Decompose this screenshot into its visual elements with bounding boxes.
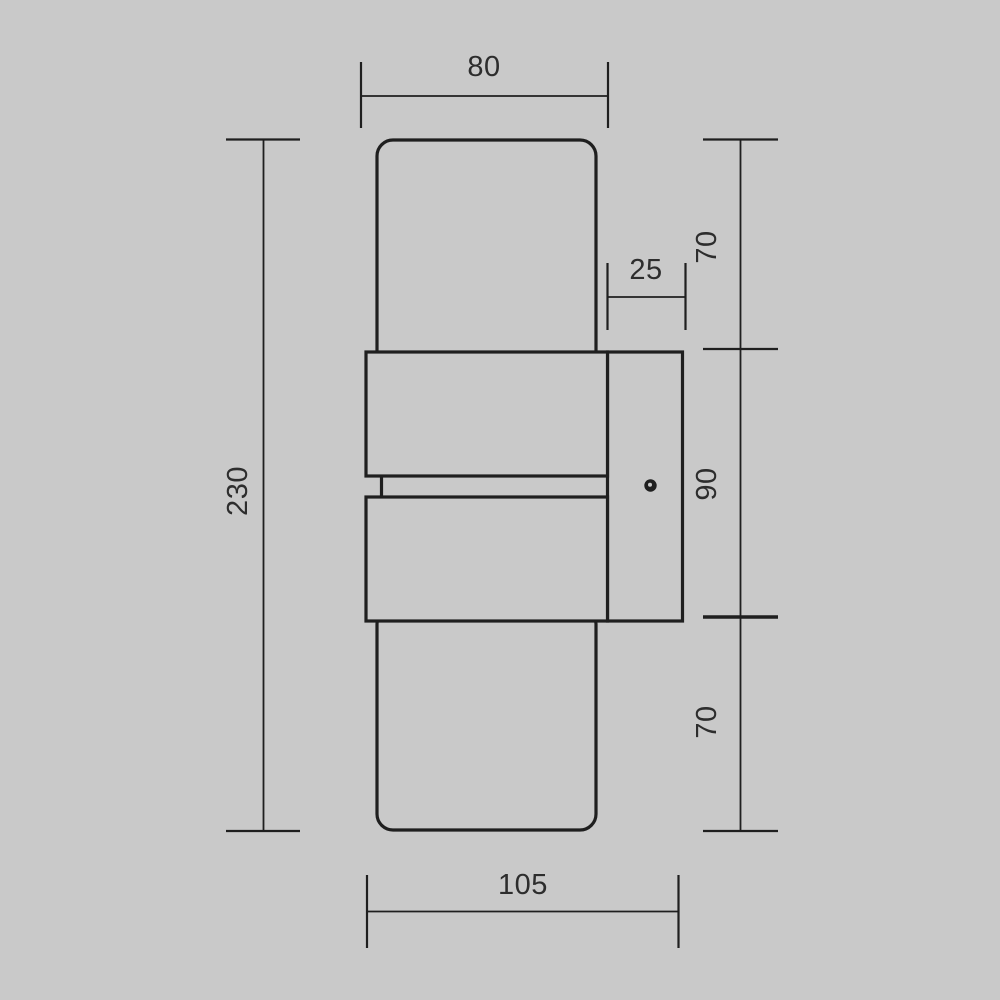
dim-label-plate-offset: 25 [629,254,662,286]
lamp-bottom-cylinder [377,608,596,830]
lamp-body-upper [366,352,608,476]
dim-label-bottom-section: 70 [691,705,723,738]
screw-hole [648,483,652,487]
dimension-drawing: 80 230 25 70 90 70 105 [0,0,1000,1000]
dim-label-overall-height: 230 [222,466,254,516]
dim-label-overall-depth: 105 [498,869,548,901]
lamp-body-lower [366,497,608,621]
dim-label-top-width: 80 [467,51,500,83]
dim-label-top-section: 70 [691,230,723,263]
dim-label-middle-section: 90 [691,467,723,500]
lamp-top-cylinder [377,140,596,368]
